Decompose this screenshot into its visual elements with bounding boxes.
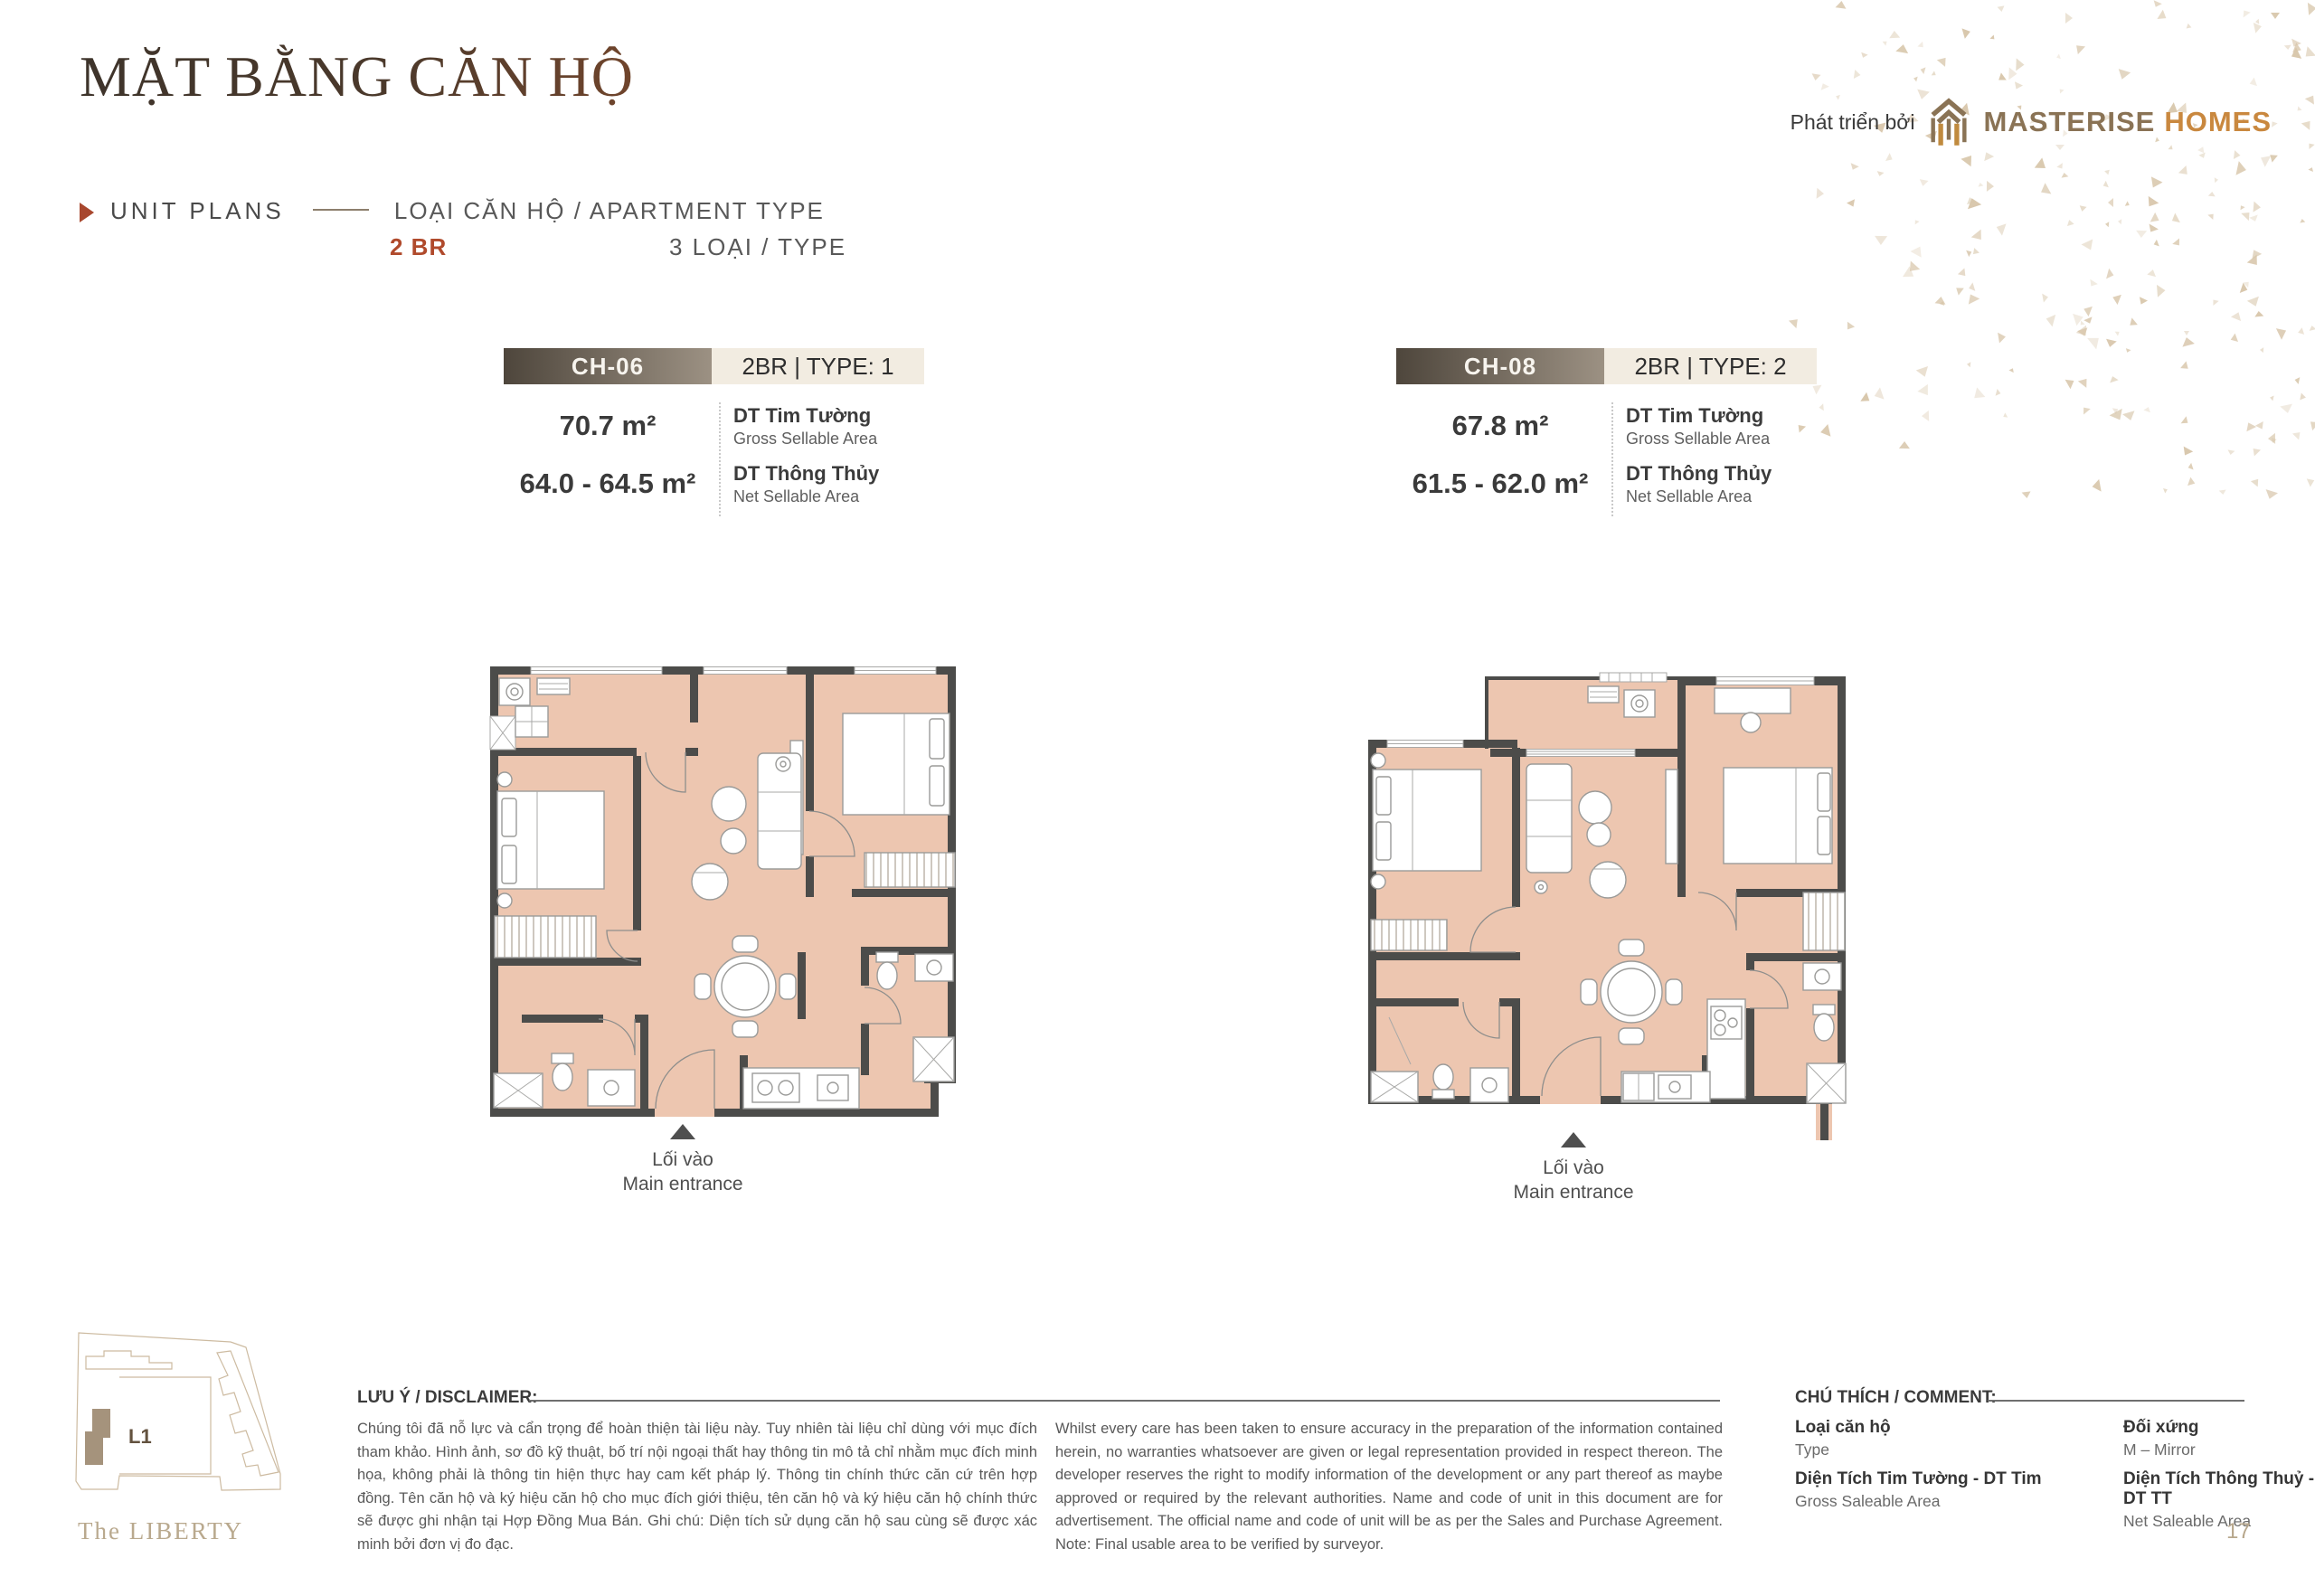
legend-item-en: Type (1795, 1440, 2112, 1459)
brand-wordmark: MASTERISEHOMES (1983, 106, 2272, 138)
site-key-plan (36, 1329, 307, 1510)
net-label-en: Net Sellable Area (1626, 487, 1772, 506)
gross-label-en: Gross Sellable Area (1626, 430, 1770, 449)
legend-item-en: Net Saleable Area (2123, 1512, 2315, 1531)
unit-type-label: 2BR | TYPE: 2 (1604, 348, 1817, 384)
net-label-vi: DT Thông Thủy (1626, 462, 1772, 486)
brand-word-homes: HOMES (2164, 106, 2272, 137)
legend-item-vi: Diện Tích Tim Tường - DT Tim (1795, 1469, 2112, 1489)
gross-area-labels: DT Tim Tường Gross Sellable Area (733, 404, 877, 449)
legend-rule (1988, 1400, 2244, 1402)
disclaimer-text-vi: Chúng tôi đã nỗ lực và cẩn trọng để hoàn… (357, 1418, 1037, 1556)
net-area-value: 61.5 - 62.0 m² (1396, 467, 1604, 500)
bedroom-tag: 2 BR (390, 233, 447, 261)
play-icon (80, 203, 94, 222)
net-area-value: 64.0 - 64.5 m² (504, 467, 712, 500)
floor-plan-ch08 (1364, 663, 1888, 1142)
dash-divider (313, 209, 369, 211)
developer-label: Phát triển bởi (1791, 110, 1915, 135)
unit-type-label: 2BR | TYPE: 1 (712, 348, 924, 384)
unit-info: 67.8 m² DT Tim Tường Gross Sellable Area… (1396, 384, 1817, 529)
gross-label-en: Gross Sellable Area (733, 430, 877, 449)
legend-item-vi: Diện Tích Thông Thuỷ - DT TT (2123, 1469, 2315, 1509)
disclaimer-rule (529, 1400, 1720, 1402)
gross-label-vi: DT Tim Tường (733, 404, 877, 428)
entrance-label-vi: Lối vào (1465, 1157, 1682, 1179)
page-number: 17 (2226, 1519, 2251, 1544)
disclaimer-heading: LƯU Ý / DISCLAIMER: (357, 1388, 537, 1408)
entrance-arrow-icon (1561, 1132, 1586, 1147)
legend-heading: CHÚ THÍCH / COMMENT: (1795, 1388, 1997, 1408)
disclaimer-text-en: Whilst every care has been taken to ensu… (1055, 1418, 1723, 1556)
entrance-label-vi: Lối vào (574, 1149, 791, 1171)
unit-card-ch06: CH-06 2BR | TYPE: 1 70.7 m² DT Tim Tường… (504, 348, 924, 529)
legend-item: Diện Tích Thông Thuỷ - DT TT Net Saleabl… (2123, 1469, 2315, 1531)
entrance-label-en: Main entrance (574, 1174, 791, 1195)
page-title: MẶT BẰNG CĂN HỘ (80, 43, 634, 110)
subtitle-row-1: UNIT PLANS LOẠI CĂN HỘ / APARTMENT TYPE (80, 197, 825, 225)
brochure-page: MẶT BẰNG CĂN HỘ UNIT PLANS LOẠI CĂN HỘ /… (0, 0, 2315, 1596)
unit-card-ch08: CH-08 2BR | TYPE: 2 67.8 m² DT Tim Tường… (1396, 348, 1817, 529)
legend-item: Loại căn hộ Type (1795, 1418, 2112, 1459)
unit-info: 70.7 m² DT Tim Tường Gross Sellable Area… (504, 384, 924, 529)
legend-item-vi: Loại căn hộ (1795, 1418, 2112, 1438)
entrance-marker-ch06: Lối vào Main entrance (574, 1124, 791, 1195)
legend-item-en: Gross Saleable Area (1795, 1492, 2112, 1511)
masterise-logo-icon (1927, 96, 1970, 148)
apartment-type-label: LOẠI CĂN HỘ / APARTMENT TYPE (394, 197, 825, 224)
net-label-vi: DT Thông Thủy (733, 462, 879, 486)
net-label-en: Net Sellable Area (733, 487, 879, 506)
gross-label-vi: DT Tim Tường (1626, 404, 1770, 428)
legend-item: Diện Tích Tim Tường - DT Tim Gross Salea… (1795, 1469, 2112, 1511)
legend-item: Đối xứng M – Mirror (2123, 1418, 2313, 1459)
gross-area-value: 67.8 m² (1396, 410, 1604, 442)
confetti-pattern (0, 0, 2315, 1596)
site-building-label: L1 (128, 1425, 152, 1449)
type-count: 3 LOẠI / TYPE (669, 233, 846, 261)
unit-header-bar: CH-08 2BR | TYPE: 2 (1396, 348, 1817, 384)
brand-word-masterise: MASTERISE (1983, 106, 2155, 137)
developer-block: Phát triển bởi MASTERISEHOMES (1791, 90, 2272, 154)
entrance-marker-ch08: Lối vào Main entrance (1465, 1132, 1682, 1204)
unit-plans-label: UNIT PLANS (110, 197, 285, 224)
gross-area-value: 70.7 m² (504, 410, 712, 442)
unit-header-bar: CH-06 2BR | TYPE: 1 (504, 348, 924, 384)
net-area-labels: DT Thông Thủy Net Sellable Area (1626, 462, 1772, 506)
gross-area-labels: DT Tim Tường Gross Sellable Area (1626, 404, 1770, 449)
floor-plan-ch06 (472, 666, 987, 1137)
net-area-labels: DT Thông Thủy Net Sellable Area (733, 462, 879, 506)
entrance-arrow-icon (670, 1124, 695, 1139)
unit-code: CH-08 (1396, 348, 1604, 384)
legend-item-en: M – Mirror (2123, 1440, 2313, 1459)
info-divider (1611, 402, 1613, 516)
legend-item-vi: Đối xứng (2123, 1418, 2313, 1438)
entrance-label-en: Main entrance (1465, 1182, 1682, 1204)
unit-code: CH-06 (504, 348, 712, 384)
info-divider (719, 402, 721, 516)
project-name: The LIBERTY (78, 1517, 243, 1545)
